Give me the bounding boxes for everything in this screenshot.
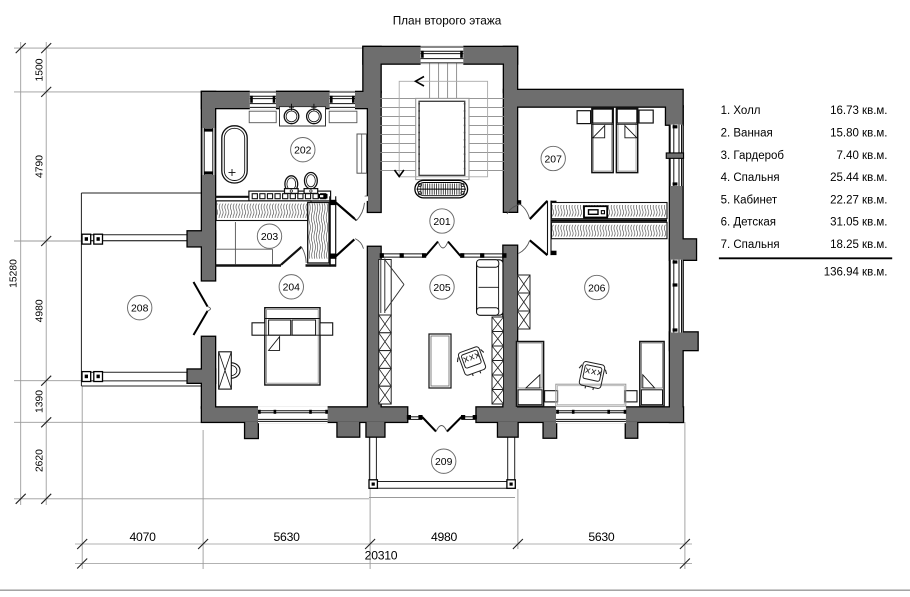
svg-text:209: 209 bbox=[435, 457, 453, 468]
svg-text:7. Спальня: 7. Спальня bbox=[721, 239, 780, 251]
svg-text:1390: 1390 bbox=[34, 390, 45, 413]
svg-text:20310: 20310 bbox=[365, 549, 398, 563]
svg-text:202: 202 bbox=[294, 146, 312, 157]
svg-text:5630: 5630 bbox=[274, 530, 301, 544]
svg-text:31.05 кв.м.: 31.05 кв.м. bbox=[830, 217, 887, 229]
svg-text:6. Детская: 6. Детская bbox=[721, 217, 776, 229]
svg-text:207: 207 bbox=[545, 154, 563, 165]
svg-text:208: 208 bbox=[131, 304, 149, 315]
svg-text:25.44 кв.м.: 25.44 кв.м. bbox=[830, 172, 887, 184]
svg-text:4790: 4790 bbox=[34, 155, 45, 178]
svg-text:205: 205 bbox=[433, 283, 451, 294]
svg-text:4. Спальня: 4. Спальня bbox=[721, 172, 780, 184]
svg-text:1500: 1500 bbox=[34, 58, 45, 81]
svg-text:203: 203 bbox=[261, 232, 279, 243]
svg-text:2620: 2620 bbox=[34, 449, 45, 472]
svg-text:1. Холл: 1. Холл bbox=[721, 105, 761, 117]
svg-text:136.94 кв.м.: 136.94 кв.м. bbox=[824, 267, 888, 279]
svg-text:3. Гардероб: 3. Гардероб bbox=[721, 150, 785, 162]
svg-text:18.25 кв.м.: 18.25 кв.м. bbox=[830, 239, 887, 251]
svg-text:5630: 5630 bbox=[588, 530, 615, 544]
svg-text:15.80 кв.м.: 15.80 кв.м. bbox=[830, 128, 887, 140]
svg-text:4980: 4980 bbox=[431, 530, 458, 544]
svg-text:206: 206 bbox=[588, 283, 606, 294]
svg-text:204: 204 bbox=[283, 283, 301, 294]
svg-text:201: 201 bbox=[433, 217, 451, 228]
svg-text:План второго этажа: План второго этажа bbox=[393, 13, 502, 27]
svg-text:7.40 кв.м.: 7.40 кв.м. bbox=[836, 150, 887, 162]
svg-text:16.73 кв.м.: 16.73 кв.м. bbox=[830, 105, 887, 117]
svg-text:22.27 кв.м.: 22.27 кв.м. bbox=[830, 194, 887, 206]
svg-text:4980: 4980 bbox=[34, 299, 45, 322]
svg-text:15280: 15280 bbox=[9, 259, 20, 288]
svg-text:5. Кабинет: 5. Кабинет bbox=[721, 194, 778, 206]
svg-text:4070: 4070 bbox=[130, 530, 157, 544]
svg-text:2. Ванная: 2. Ванная bbox=[721, 128, 773, 140]
